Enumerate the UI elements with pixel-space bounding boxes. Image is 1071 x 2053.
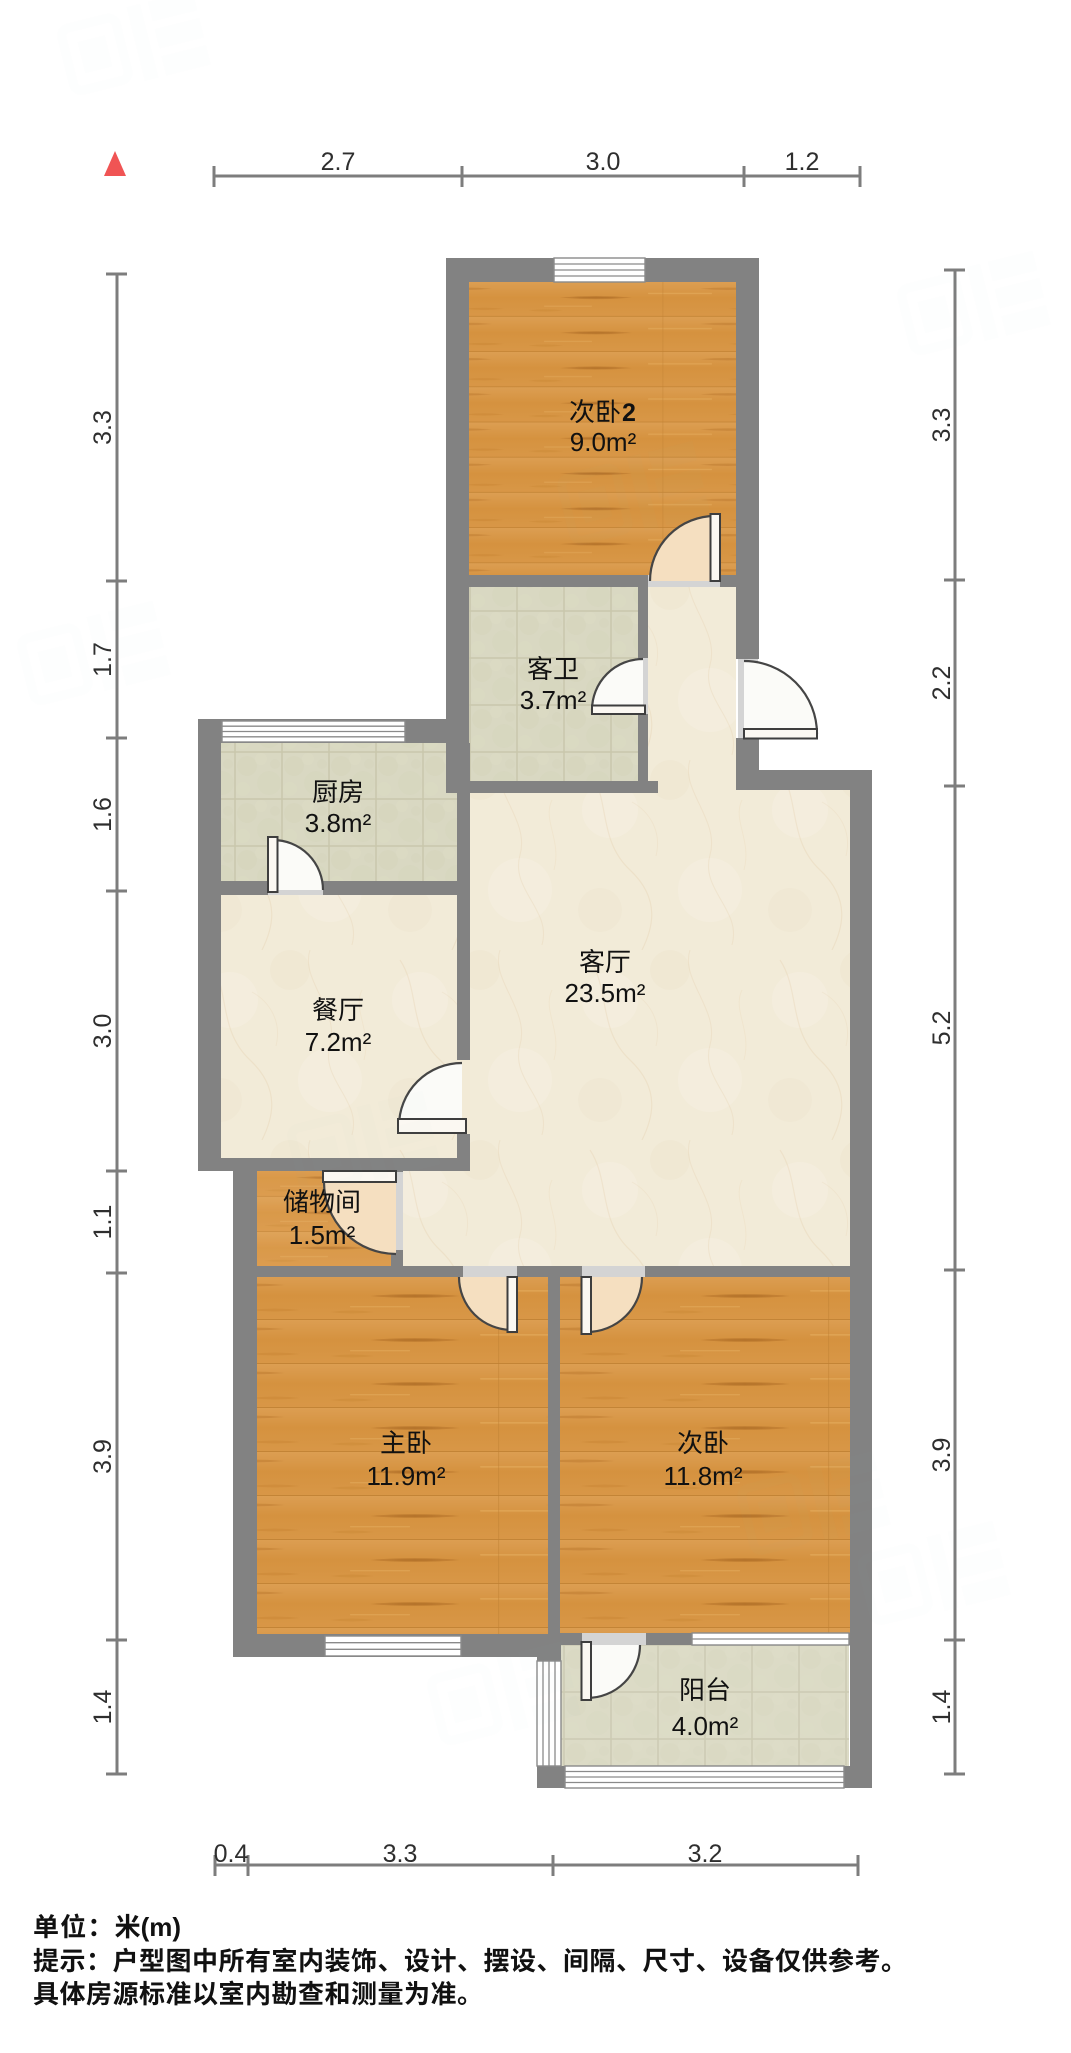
svg-text:1.4: 1.4 (928, 1690, 956, 1725)
svg-text:3.3: 3.3 (89, 410, 117, 445)
svg-text:1.4: 1.4 (89, 1690, 117, 1725)
svg-text:1.1: 1.1 (89, 1205, 117, 1240)
svg-text:2.2: 2.2 (928, 666, 956, 701)
svg-text:3.3: 3.3 (383, 1840, 418, 1868)
svg-text:3.8m²: 3.8m² (305, 808, 372, 838)
svg-text:0.4: 0.4 (214, 1840, 249, 1868)
svg-text:3.0: 3.0 (586, 148, 621, 176)
svg-text:2: 2 (622, 399, 636, 427)
svg-text:7.2m²: 7.2m² (305, 1027, 372, 1057)
svg-text:11.9m²: 11.9m² (367, 1461, 446, 1491)
svg-text:3.7m²: 3.7m² (520, 685, 587, 715)
svg-text:3.2: 3.2 (688, 1840, 723, 1868)
svg-text:9.0m²: 9.0m² (570, 427, 637, 457)
svg-text:3.9: 3.9 (928, 1438, 956, 1473)
svg-text:3.0: 3.0 (89, 1014, 117, 1049)
svg-text:1.5m²: 1.5m² (289, 1220, 356, 1250)
svg-text:3.9: 3.9 (89, 1439, 117, 1474)
svg-text:1.2: 1.2 (785, 148, 820, 176)
svg-text:4.0m²: 4.0m² (672, 1711, 739, 1741)
svg-text:1.6: 1.6 (89, 797, 117, 832)
svg-text:5.2: 5.2 (928, 1011, 956, 1046)
svg-text:11.8m²: 11.8m² (664, 1461, 743, 1491)
svg-text:2.7: 2.7 (321, 148, 356, 176)
svg-text:3.3: 3.3 (928, 408, 956, 443)
svg-text:(m): (m) (141, 1912, 181, 1942)
svg-text:23.5m²: 23.5m² (565, 978, 646, 1008)
